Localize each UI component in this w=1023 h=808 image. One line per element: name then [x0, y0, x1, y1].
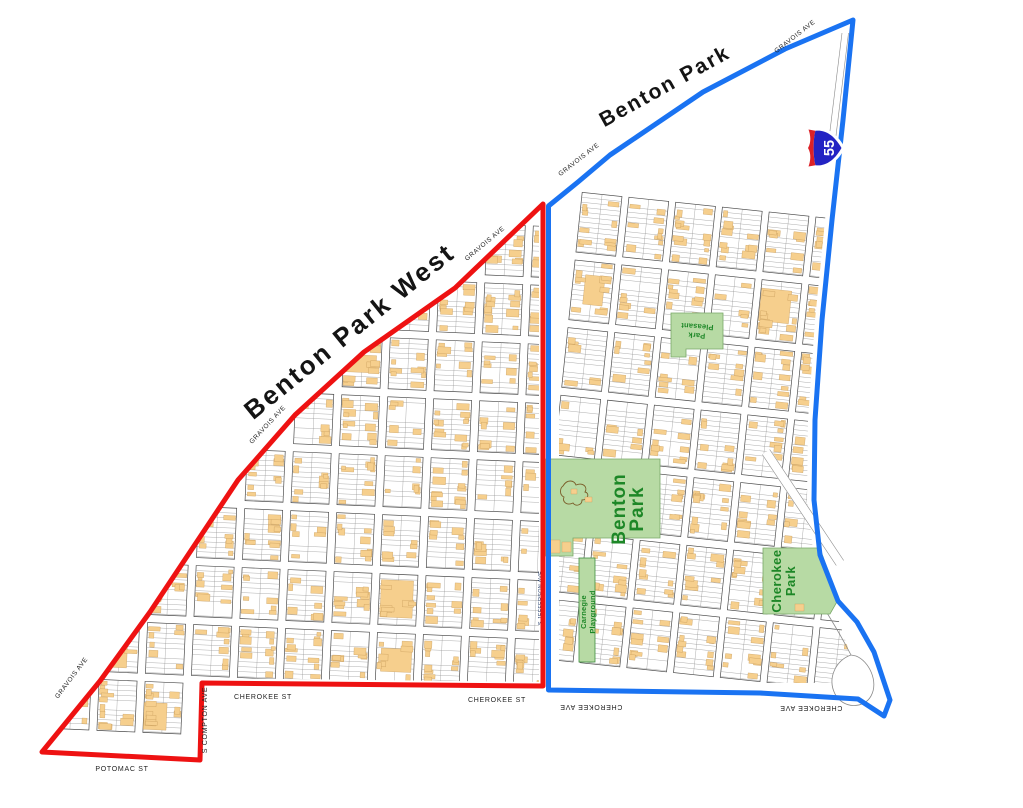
benton-park-west-parcel-layer — [51, 206, 571, 750]
shield-route-number: 55 — [822, 140, 838, 156]
park-building — [585, 497, 592, 502]
park-building — [562, 542, 571, 552]
map-page: BentonPark CherokeePark ParkPleasant Car… — [0, 0, 1023, 808]
street-label-gravois: GRAVOIS AVE — [54, 656, 90, 700]
street-label-cherokee-ave: CHEROKEE AVE — [780, 704, 843, 711]
street-label-gravois: GRAVOIS AVE — [557, 142, 601, 178]
park-building — [571, 489, 577, 494]
street-label-cherokee-st: CHEROKEE ST — [234, 694, 292, 701]
park-building — [795, 604, 804, 611]
neighborhood-map: BentonPark CherokeePark ParkPleasant Car… — [0, 0, 1023, 808]
street-label-cherokee-st: CHEROKEE ST — [468, 697, 526, 704]
carnegie-playground-label: CarnegiePlayground — [579, 590, 597, 633]
park-building — [550, 540, 560, 553]
street-label-cherokee-ave: CHEROKEE AVE — [560, 703, 623, 710]
street-label-potomac: POTOMAC ST — [95, 766, 148, 773]
street-label-s-compton: S COMPTON AVE — [202, 687, 209, 753]
